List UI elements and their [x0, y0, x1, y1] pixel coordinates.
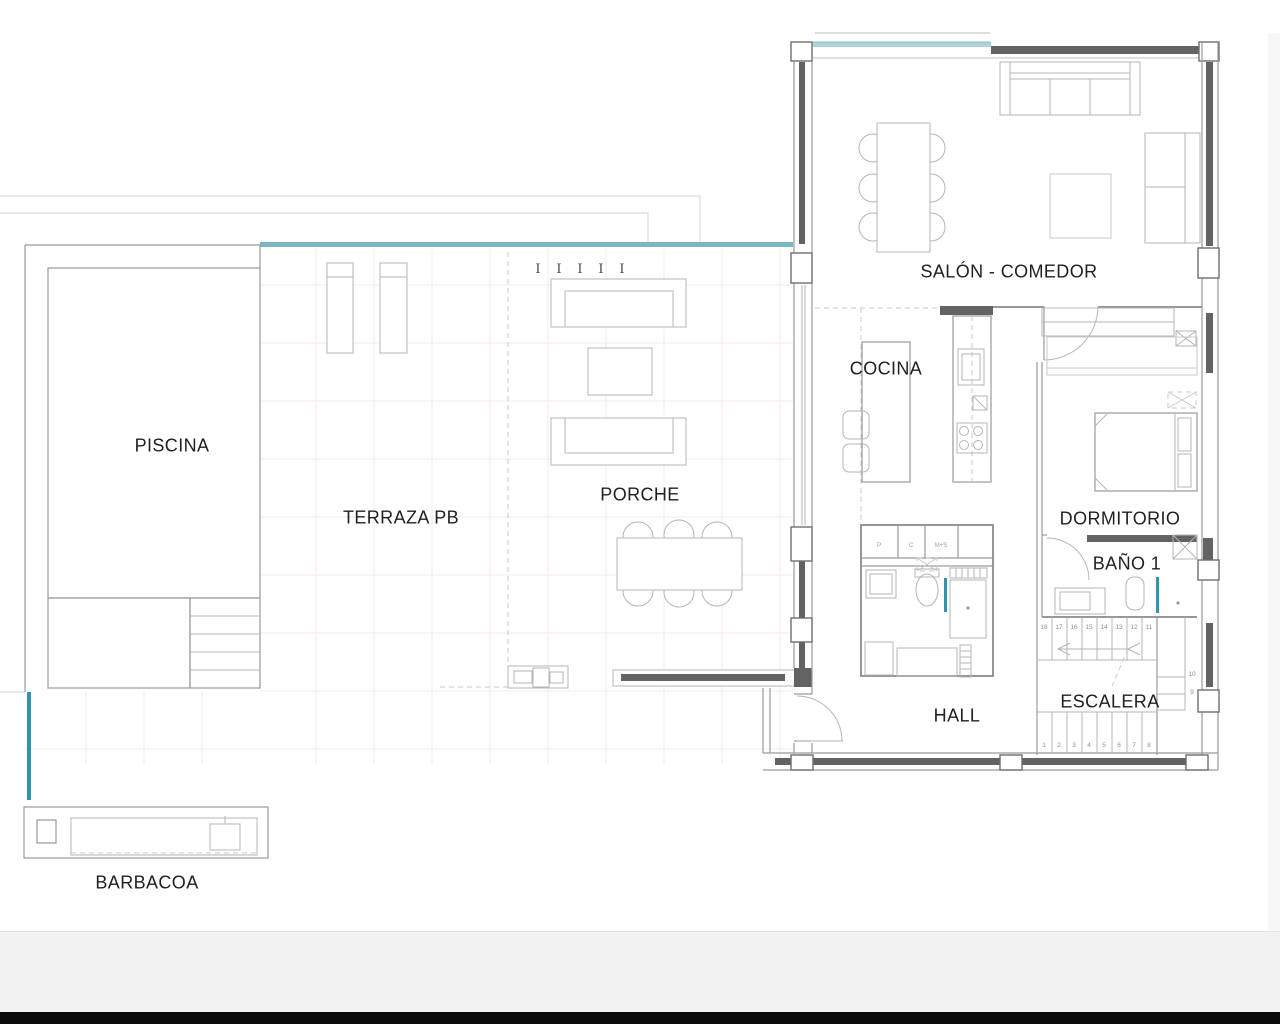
svg-text:18: 18 — [1040, 624, 1048, 631]
svg-text:5: 5 — [1102, 742, 1106, 749]
entrance-door — [794, 694, 843, 741]
stair-step-numbers: 18 17 16 15 14 13 12 11 10 9 1 2 3 4 5 6… — [1040, 624, 1196, 749]
viewer-right-margin — [1268, 33, 1280, 932]
bathroom1-fixtures — [1055, 577, 1180, 614]
svg-text:17: 17 — [1055, 624, 1063, 631]
utility-toilet — [916, 574, 938, 606]
terrace-edge-accent — [260, 242, 793, 247]
svg-text:16: 16 — [1070, 624, 1078, 631]
room-label-dormitorio: DORMITORIO — [1060, 509, 1181, 530]
svg-text:C: C — [909, 543, 914, 549]
svg-text:12: 12 — [1130, 624, 1138, 631]
svg-text:4: 4 — [1087, 742, 1091, 749]
bedroom-door-arc — [1044, 306, 1098, 360]
svg-text:11: 11 — [1146, 624, 1153, 631]
pillow — [1178, 418, 1191, 451]
svg-text:P: P — [877, 543, 881, 549]
svg-text:9: 9 — [1190, 689, 1194, 696]
viewer-bottom-bar — [0, 1012, 1280, 1024]
viewer-bottom-strip — [0, 931, 1280, 1013]
stool — [843, 411, 869, 439]
porch-boundary-dashed — [440, 252, 508, 687]
bed — [1095, 413, 1197, 491]
svg-text:6: 6 — [1117, 742, 1121, 749]
staircase — [1037, 617, 1185, 755]
svg-text:I: I — [577, 262, 582, 277]
svg-text:M+S: M+S — [935, 543, 948, 549]
pool-steps — [190, 616, 260, 670]
svg-text:13: 13 — [1115, 624, 1123, 631]
site-boundary — [0, 33, 1280, 932]
barbecue-counter — [24, 807, 268, 858]
svg-text:I: I — [619, 262, 624, 277]
svg-text:15: 15 — [1085, 624, 1093, 631]
svg-text:8: 8 — [1147, 742, 1151, 749]
porch-wall — [508, 666, 812, 688]
floorplan-canvas: 18 17 16 15 14 13 12 11 10 9 1 2 3 4 5 6… — [0, 0, 1280, 1024]
svg-text:14: 14 — [1100, 624, 1108, 631]
room-label-escalera: ESCALERA — [1060, 692, 1159, 713]
room-label-barbacoa: BARBACOA — [95, 873, 198, 894]
room-label-terraza-pb: TERRAZA PB — [343, 508, 459, 529]
pool — [25, 245, 260, 692]
svg-text:I: I — [598, 262, 603, 277]
svg-text:1: 1 — [1042, 742, 1046, 749]
room-label-salon: SALÓN - COMEDOR — [920, 262, 1097, 283]
house-left-wall — [791, 42, 812, 753]
barbecue-sink — [210, 824, 240, 850]
l-sofa — [1145, 133, 1200, 243]
porch-column-marks: I I I I I — [535, 262, 624, 277]
svg-text:2: 2 — [1057, 742, 1061, 749]
sun-loungers — [327, 263, 407, 353]
radiator — [960, 645, 971, 677]
kitchen — [815, 306, 993, 525]
utility-cabinet-labels: P C M+S — [877, 543, 947, 549]
garden-wall-accent — [27, 692, 31, 800]
bath1-shower-screen — [1156, 577, 1159, 613]
salon-window-glass — [813, 42, 991, 47]
svg-text:I: I — [535, 262, 540, 277]
room-label-cocina: COCINA — [850, 359, 922, 380]
svg-text:7: 7 — [1132, 742, 1136, 749]
coffee-table — [1050, 174, 1111, 238]
porch-lounge-set — [551, 279, 686, 465]
room-label-hall: HALL — [934, 706, 981, 727]
bath1-door-arc — [1047, 538, 1089, 580]
porch-dining-set — [617, 520, 742, 607]
svg-text:3: 3 — [1072, 742, 1076, 749]
bath1-toilet — [1126, 577, 1144, 610]
house-right-wall — [1198, 42, 1219, 770]
room-label-bano1: BAÑO 1 — [1093, 554, 1161, 575]
salon-furniture — [859, 62, 1200, 252]
pillow — [1178, 454, 1191, 487]
dining-table — [877, 123, 930, 252]
svg-text:I: I — [556, 262, 561, 277]
dresser — [1047, 337, 1197, 375]
stool — [843, 444, 869, 472]
utility-shower-screen — [944, 578, 947, 612]
room-label-porche: PORCHE — [600, 485, 679, 506]
svg-text:10: 10 — [1188, 671, 1196, 678]
room-label-piscina: PISCINA — [135, 436, 210, 457]
